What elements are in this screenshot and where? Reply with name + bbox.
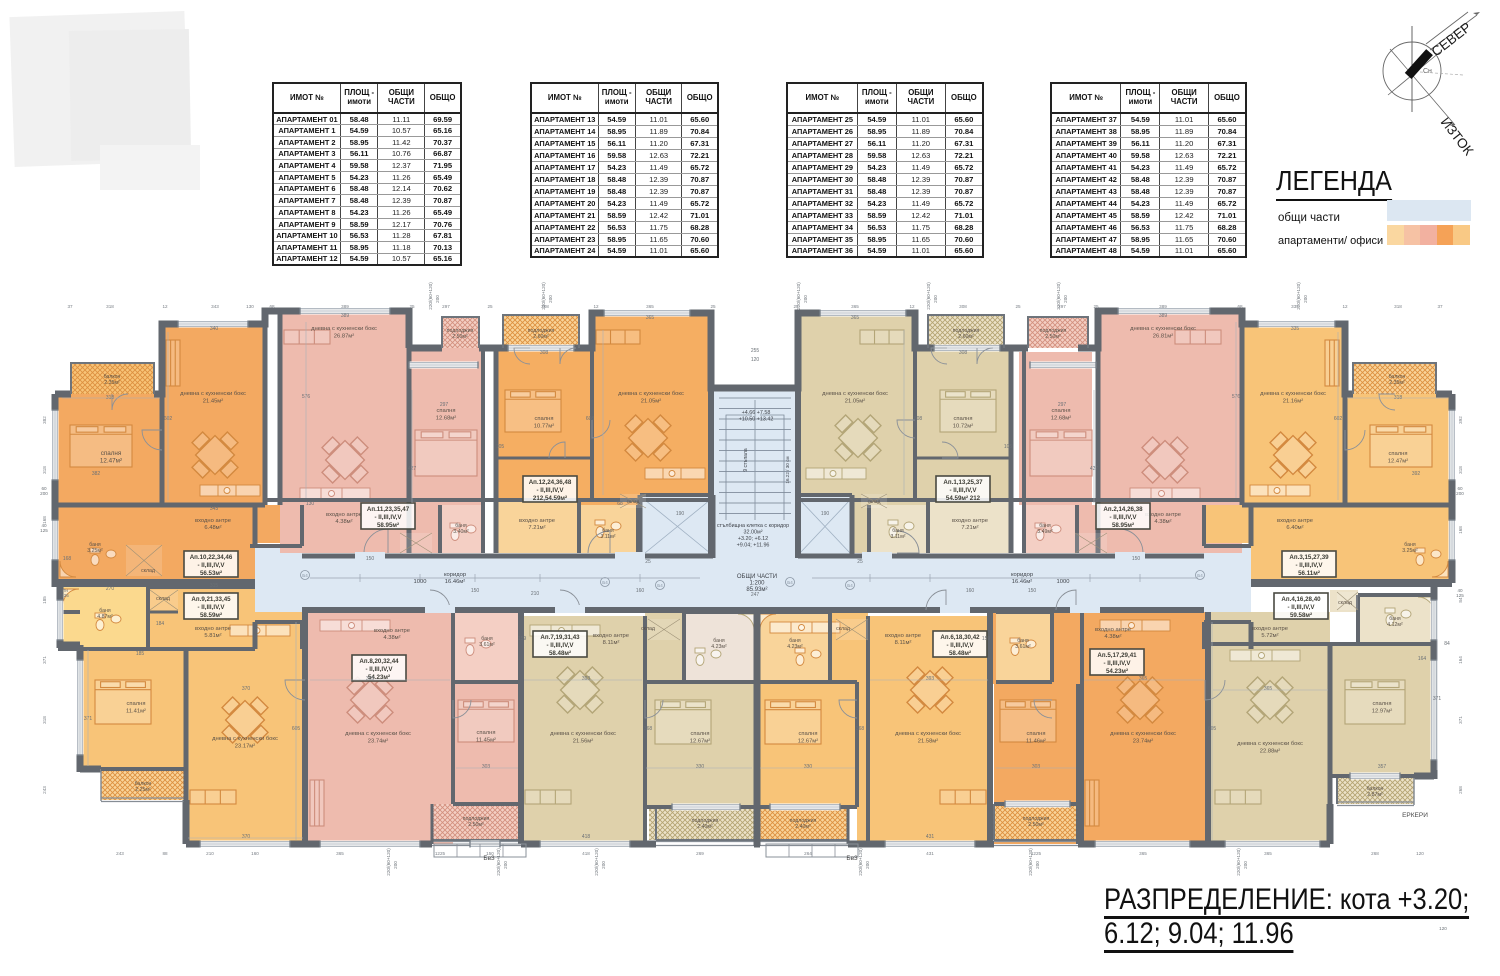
svg-text:365: 365 bbox=[1264, 686, 1273, 692]
svg-text:382: 382 bbox=[92, 471, 101, 477]
svg-text:68: 68 bbox=[269, 304, 275, 309]
svg-text:Ап.7,19,31,43: Ап.7,19,31,43 bbox=[540, 634, 580, 641]
svg-text:2.40м²: 2.40м² bbox=[697, 824, 713, 830]
svg-text:303: 303 bbox=[482, 764, 491, 770]
svg-text:26.87м²: 26.87м² bbox=[334, 334, 354, 340]
svg-text:входно антре: входно антре bbox=[195, 518, 231, 524]
svg-text:12: 12 bbox=[909, 304, 915, 309]
svg-text:418: 418 bbox=[582, 851, 590, 856]
svg-text:335: 335 bbox=[1291, 326, 1300, 332]
svg-text:56.11м²: 56.11м² bbox=[1298, 570, 1320, 577]
svg-text:297: 297 bbox=[440, 402, 449, 408]
svg-text:9 стъпала: 9 стъпала bbox=[743, 448, 749, 471]
svg-text:дневна с кухненски бокс: дневна с кухненски бокс bbox=[550, 731, 616, 737]
svg-text:2.40м²: 2.40м² bbox=[795, 824, 811, 830]
svg-text:3.61м²: 3.61м² bbox=[1015, 644, 1031, 650]
svg-text:54.59м² 212: 54.59м² 212 bbox=[946, 495, 981, 502]
svg-text:160: 160 bbox=[966, 588, 975, 594]
svg-text:220/(60+120): 220/(60+120) bbox=[858, 848, 863, 876]
svg-text:120: 120 bbox=[751, 357, 760, 363]
svg-text:370: 370 bbox=[242, 834, 251, 840]
svg-text:21.58м²: 21.58м² bbox=[918, 739, 938, 745]
svg-text:371: 371 bbox=[1458, 716, 1463, 724]
svg-text:220/(60+120): 220/(60+120) bbox=[428, 282, 433, 310]
svg-text:68: 68 bbox=[1237, 304, 1243, 309]
svg-text:368: 368 bbox=[644, 726, 653, 732]
svg-text:268: 268 bbox=[1458, 786, 1463, 794]
svg-text:365: 365 bbox=[336, 851, 344, 856]
svg-text:200: 200 bbox=[393, 861, 398, 869]
svg-text:Бв3: Бв3 bbox=[483, 855, 495, 862]
svg-text:389: 389 bbox=[1159, 304, 1167, 309]
svg-text:22.88м²: 22.88м² bbox=[1260, 749, 1280, 755]
svg-text:Б4: Б4 bbox=[847, 583, 853, 588]
svg-text:164: 164 bbox=[1418, 656, 1427, 662]
svg-text:стълбищна клетка с коридор: стълбищна клетка с коридор bbox=[717, 523, 789, 529]
svg-text:25: 25 bbox=[645, 559, 651, 565]
svg-text:184: 184 bbox=[156, 621, 165, 627]
svg-text:125: 125 bbox=[61, 593, 69, 598]
svg-text:330: 330 bbox=[696, 764, 705, 770]
svg-text:- II,III,IV,V: - II,III,IV,V bbox=[198, 562, 226, 569]
svg-text:12.68м²: 12.68м² bbox=[436, 416, 456, 422]
svg-text:12.47м²: 12.47м² bbox=[1388, 459, 1408, 465]
svg-text:343: 343 bbox=[211, 304, 219, 309]
svg-text:365: 365 bbox=[851, 304, 859, 309]
svg-text:200: 200 bbox=[1063, 295, 1068, 303]
svg-text:200: 200 bbox=[933, 295, 938, 303]
svg-text:220/(60+120): 220/(60+120) bbox=[594, 848, 599, 876]
svg-text:спалня: спалня bbox=[101, 450, 122, 457]
svg-text:5.81м²: 5.81м² bbox=[204, 633, 221, 639]
svg-text:Ап.12,24,36,48: Ап.12,24,36,48 bbox=[529, 479, 572, 486]
svg-text:150: 150 bbox=[1132, 556, 1141, 562]
svg-text:7.21м²: 7.21м² bbox=[528, 525, 545, 531]
svg-text:168: 168 bbox=[1458, 526, 1463, 534]
svg-text:21.56м²: 21.56м² bbox=[573, 739, 593, 745]
svg-text:608: 608 bbox=[914, 416, 923, 422]
svg-text:+3.20; +6.12: +3.20; +6.12 bbox=[738, 536, 768, 542]
svg-text:23.74м²: 23.74м² bbox=[368, 739, 388, 745]
svg-text:12: 12 bbox=[593, 304, 599, 309]
svg-text:2.60м²: 2.60м² bbox=[958, 334, 974, 340]
svg-text:7.21м²: 7.21м² bbox=[961, 525, 978, 531]
svg-text:11.46м²: 11.46м² bbox=[1026, 739, 1046, 745]
svg-text:389: 389 bbox=[341, 304, 349, 309]
svg-text:220/(60+120): 220/(60+120) bbox=[1296, 282, 1301, 310]
svg-text:365: 365 bbox=[1264, 851, 1272, 856]
svg-text:59.58м²: 59.58м² bbox=[1290, 612, 1312, 619]
svg-text:2.25м²: 2.25м² bbox=[135, 787, 151, 793]
svg-text:200: 200 bbox=[601, 861, 606, 869]
svg-text:389: 389 bbox=[1159, 313, 1168, 319]
svg-text:входно антре: входно антре bbox=[374, 628, 410, 634]
svg-text:357: 357 bbox=[1378, 764, 1387, 770]
svg-text:4.23м²: 4.23м² bbox=[787, 644, 803, 650]
svg-text:спалня: спалня bbox=[127, 701, 146, 707]
svg-text:- II,III,IV,V: - II,III,IV,V bbox=[947, 642, 975, 649]
svg-text:200: 200 bbox=[40, 491, 48, 496]
svg-text:200: 200 bbox=[1456, 491, 1464, 496]
svg-text:входно антре: входно антре bbox=[195, 626, 231, 632]
svg-text:- II,III,IV,V: - II,III,IV,V bbox=[1296, 562, 1324, 569]
svg-text:220/(60+120): 220/(60+120) bbox=[926, 282, 931, 310]
svg-text:25: 25 bbox=[1015, 304, 1021, 309]
svg-text:58.48м²: 58.48м² bbox=[549, 650, 571, 657]
svg-text:12.97м²: 12.97м² bbox=[1372, 709, 1392, 715]
svg-text:382: 382 bbox=[42, 416, 47, 424]
svg-text:308: 308 bbox=[540, 350, 549, 356]
svg-text:- II,III,IV,V: - II,III,IV,V bbox=[537, 487, 565, 494]
svg-text:220/(60+120): 220/(60+120) bbox=[1028, 848, 1033, 876]
svg-text:84: 84 bbox=[1444, 641, 1450, 647]
svg-text:297: 297 bbox=[442, 304, 450, 309]
svg-text:340: 340 bbox=[210, 326, 219, 332]
svg-text:входно антре: входно антре bbox=[1277, 518, 1313, 524]
svg-text:спалня: спалня bbox=[954, 416, 973, 422]
svg-text:спалня: спалня bbox=[691, 731, 710, 737]
svg-text:дневна с кухненски бокс: дневна с кухненски бокс bbox=[895, 731, 961, 737]
svg-text:220/(60+120): 220/(60+120) bbox=[386, 848, 391, 876]
svg-text:220/(60+120): 220/(60+120) bbox=[1056, 282, 1061, 310]
svg-text:308: 308 bbox=[959, 304, 967, 309]
svg-text:спалня: спалня bbox=[1027, 731, 1046, 737]
svg-text:190: 190 bbox=[676, 511, 685, 517]
svg-text:2.50м²: 2.50м² bbox=[468, 822, 484, 828]
svg-text:269: 269 bbox=[696, 851, 704, 856]
svg-text:243: 243 bbox=[116, 851, 124, 856]
svg-text:11.45м²: 11.45м² bbox=[476, 738, 496, 744]
svg-text:58.48м²: 58.48м² bbox=[949, 650, 971, 657]
svg-text:200: 200 bbox=[1243, 861, 1248, 869]
svg-text:392: 392 bbox=[1412, 471, 1421, 477]
svg-text:159: 159 bbox=[518, 636, 527, 642]
svg-text:+10.50 +13.42: +10.50 +13.42 bbox=[739, 417, 774, 423]
svg-text:4.38м²: 4.38м² bbox=[335, 519, 352, 525]
svg-text:365: 365 bbox=[1139, 851, 1147, 856]
svg-text:4.38м²: 4.38м² bbox=[383, 635, 400, 641]
svg-text:303: 303 bbox=[1032, 764, 1041, 770]
svg-text:25: 25 bbox=[487, 304, 493, 309]
svg-text:200: 200 bbox=[803, 295, 808, 303]
svg-text:ЕРКЕРИ: ЕРКЕРИ bbox=[1402, 812, 1428, 819]
svg-text:190: 190 bbox=[821, 511, 830, 517]
svg-text:220/(60+120): 220/(60+120) bbox=[796, 282, 801, 310]
svg-text:Ап.2,14,26,38: Ап.2,14,26,38 bbox=[1103, 506, 1143, 513]
svg-text:243: 243 bbox=[42, 786, 47, 794]
svg-text:343: 343 bbox=[210, 506, 219, 512]
svg-text:150: 150 bbox=[366, 556, 375, 562]
svg-text:2.50м²: 2.50м² bbox=[1028, 822, 1044, 828]
svg-text:270: 270 bbox=[106, 586, 115, 592]
svg-text:2.35м²: 2.35м² bbox=[104, 380, 120, 386]
svg-text:8.11м²: 8.11м² bbox=[895, 640, 912, 646]
svg-text:212,54.59м²: 212,54.59м² bbox=[533, 495, 567, 502]
svg-text:- II,III,IV,V: - II,III,IV,V bbox=[1110, 514, 1138, 521]
svg-text:200: 200 bbox=[548, 295, 553, 303]
svg-text:130: 130 bbox=[246, 304, 254, 309]
svg-text:коридор: коридор bbox=[444, 572, 466, 578]
svg-text:431: 431 bbox=[926, 834, 935, 840]
svg-text:365: 365 bbox=[646, 304, 654, 309]
svg-text:4.38м²: 4.38м² bbox=[1154, 519, 1171, 525]
svg-text:32.00м²: 32.00м² bbox=[744, 530, 763, 536]
svg-text:входно антре: входно антре bbox=[885, 633, 921, 639]
svg-text:спалня: спалня bbox=[535, 416, 554, 422]
svg-text:5.72м²: 5.72м² bbox=[1261, 633, 1278, 639]
svg-text:Б4: Б4 bbox=[657, 583, 663, 588]
svg-text:150: 150 bbox=[471, 588, 480, 594]
svg-text:склад: склад bbox=[627, 500, 640, 505]
svg-text:88: 88 bbox=[162, 851, 168, 856]
svg-text:2.35м²: 2.35м² bbox=[1389, 380, 1405, 386]
svg-text:дневна с кухненски бокс: дневна с кухненски бокс bbox=[1130, 326, 1196, 332]
svg-text:25: 25 bbox=[1093, 304, 1099, 309]
svg-text:268: 268 bbox=[1371, 851, 1379, 856]
svg-text:365: 365 bbox=[851, 315, 860, 321]
svg-text:спалня: спалня bbox=[1373, 701, 1392, 707]
svg-text:1225: 1225 bbox=[435, 851, 446, 856]
svg-text:2.50м²: 2.50м² bbox=[1045, 334, 1061, 340]
svg-text:дневна с кухненски бокс: дневна с кухненски бокс bbox=[1237, 741, 1303, 747]
svg-text:431: 431 bbox=[926, 851, 934, 856]
svg-text:дневна с кухненски бокс: дневна с кухненски бокс bbox=[822, 391, 888, 397]
svg-text:308: 308 bbox=[959, 350, 968, 356]
svg-text:150: 150 bbox=[1028, 588, 1037, 594]
svg-text:3.11м²: 3.11м² bbox=[600, 534, 615, 540]
svg-text:дневна с кухненски бокс: дневна с кухненски бокс bbox=[1260, 391, 1326, 397]
svg-text:185: 185 bbox=[42, 596, 47, 604]
svg-text:склад: склад bbox=[1338, 600, 1352, 606]
svg-text:10.72м²: 10.72м² bbox=[953, 424, 973, 430]
svg-text:Б4: Б4 bbox=[787, 580, 793, 585]
svg-text:Ап.9,21,33,45: Ап.9,21,33,45 bbox=[191, 596, 231, 603]
svg-text:25: 25 bbox=[409, 304, 415, 309]
svg-text:3.40м²: 3.40м² bbox=[453, 529, 469, 535]
svg-text:входно антре: входно антре bbox=[1252, 626, 1288, 632]
svg-text:2.87м²: 2.87м² bbox=[1367, 792, 1383, 798]
svg-text:склад: склад bbox=[868, 500, 881, 505]
svg-text:4.87м²: 4.87м² bbox=[97, 614, 113, 620]
svg-text:393: 393 bbox=[926, 676, 935, 682]
svg-text:Ап.1,13,25,37: Ап.1,13,25,37 bbox=[943, 479, 983, 486]
svg-text:200: 200 bbox=[435, 295, 440, 303]
svg-text:365: 365 bbox=[646, 315, 655, 321]
svg-text:- II,III,IV,V: - II,III,IV,V bbox=[547, 642, 575, 649]
svg-text:185: 185 bbox=[136, 651, 145, 657]
svg-text:входно антре: входно антре bbox=[952, 518, 988, 524]
svg-text:12.67м²: 12.67м² bbox=[690, 739, 710, 745]
svg-text:160: 160 bbox=[636, 588, 645, 594]
svg-text:входно антре: входно антре bbox=[1095, 627, 1131, 633]
svg-text:200: 200 bbox=[1303, 295, 1308, 303]
svg-text:264: 264 bbox=[804, 851, 812, 856]
svg-text:Ап.3,15,27,39: Ап.3,15,27,39 bbox=[1289, 554, 1329, 561]
svg-text:389: 389 bbox=[341, 313, 350, 319]
svg-text:21.05м²: 21.05м² bbox=[845, 399, 865, 405]
svg-text:330: 330 bbox=[804, 764, 813, 770]
svg-text:37: 37 bbox=[67, 304, 73, 309]
svg-text:спалня: спалня bbox=[1052, 408, 1071, 414]
svg-text:+4.66 +7.58: +4.66 +7.58 bbox=[742, 410, 771, 416]
svg-text:318: 318 bbox=[1458, 466, 1463, 474]
svg-text:160: 160 bbox=[251, 851, 259, 856]
svg-text:дневна с кухненски бокс: дневна с кухненски бокс bbox=[345, 731, 411, 737]
svg-text:3.25м²: 3.25м² bbox=[87, 548, 103, 554]
svg-text:- II,III,IV,V: - II,III,IV,V bbox=[375, 514, 403, 521]
svg-text:дневна с кухненски бокс: дневна с кухненски бокс bbox=[311, 326, 377, 332]
svg-text:склад: склад bbox=[641, 626, 655, 632]
svg-text:+9.04; +11.96: +9.04; +11.96 bbox=[737, 543, 770, 549]
svg-text:- II,III,IV,V: - II,III,IV,V bbox=[366, 666, 394, 673]
svg-text:Ап.5,17,29,41: Ап.5,17,29,41 bbox=[1097, 652, 1137, 659]
svg-text:3.61м²: 3.61м² bbox=[479, 642, 495, 648]
svg-text:68: 68 bbox=[617, 501, 623, 507]
svg-text:200: 200 bbox=[503, 861, 508, 869]
svg-text:12: 12 bbox=[162, 304, 168, 309]
svg-text:255: 255 bbox=[751, 348, 760, 354]
svg-text:58.59м²: 58.59м² bbox=[200, 612, 222, 619]
svg-text:Б4: Б4 bbox=[1197, 573, 1203, 578]
svg-text:4.12м²: 4.12м² bbox=[1387, 622, 1403, 628]
svg-text:21.45м²: 21.45м² bbox=[203, 399, 223, 405]
svg-text:1:200: 1:200 bbox=[749, 581, 765, 587]
svg-text:16.22 / 30 см: 16.22 / 30 см bbox=[785, 456, 790, 483]
svg-text:дневна с кухненски бокс: дневна с кухненски бокс bbox=[212, 736, 278, 742]
svg-text:105: 105 bbox=[496, 444, 505, 450]
svg-text:1000: 1000 bbox=[1057, 579, 1070, 585]
svg-text:318: 318 bbox=[1394, 304, 1402, 309]
svg-text:365: 365 bbox=[1139, 676, 1148, 682]
svg-text:дневна с кухненски бокс: дневна с кухненски бокс bbox=[180, 391, 246, 397]
svg-text:318: 318 bbox=[42, 466, 47, 474]
svg-text:склад: склад bbox=[836, 626, 850, 632]
svg-text:247: 247 bbox=[751, 592, 760, 598]
svg-text:159: 159 bbox=[982, 636, 991, 642]
svg-text:2.60м²: 2.60м² bbox=[533, 334, 549, 340]
svg-text:25: 25 bbox=[857, 559, 863, 565]
svg-text:220/(60+120): 220/(60+120) bbox=[496, 848, 501, 876]
svg-text:Ап.4,16,28,40: Ап.4,16,28,40 bbox=[1281, 596, 1321, 603]
svg-text:11.41м²: 11.41м² bbox=[126, 709, 146, 715]
svg-text:56.53м²: 56.53м² bbox=[200, 570, 222, 577]
svg-text:125: 125 bbox=[40, 528, 48, 533]
svg-text:6.40м²: 6.40м² bbox=[1286, 525, 1303, 531]
svg-text:дневна с кухненски бокс: дневна с кухненски бокс bbox=[618, 391, 684, 397]
svg-text:16.46м²: 16.46м² bbox=[445, 579, 465, 585]
svg-text:392: 392 bbox=[1458, 416, 1463, 424]
svg-text:318: 318 bbox=[42, 716, 47, 724]
svg-text:входно антре: входно антре bbox=[326, 512, 362, 518]
svg-text:Б4: Б4 bbox=[302, 573, 308, 578]
svg-text:120: 120 bbox=[1416, 851, 1424, 856]
svg-text:входно антре: входно антре bbox=[519, 518, 555, 524]
svg-text:318: 318 bbox=[106, 304, 114, 309]
svg-text:склад: склад bbox=[156, 596, 170, 602]
svg-text:21.16м²: 21.16м² bbox=[1283, 399, 1303, 405]
svg-text:58.95м²: 58.95м² bbox=[377, 522, 399, 529]
svg-text:125: 125 bbox=[1456, 593, 1464, 598]
svg-text:54.23м²: 54.23м² bbox=[1106, 668, 1128, 675]
svg-text:297: 297 bbox=[1058, 402, 1067, 408]
svg-text:3.49м²: 3.49м² bbox=[1037, 529, 1053, 535]
svg-text:210: 210 bbox=[206, 851, 214, 856]
svg-text:150: 150 bbox=[486, 851, 494, 856]
svg-text:спалня: спалня bbox=[477, 730, 496, 736]
svg-text:21.05м²: 21.05м² bbox=[641, 399, 661, 405]
svg-text:37: 37 bbox=[1437, 304, 1443, 309]
svg-text:6.48м²: 6.48м² bbox=[204, 525, 221, 531]
svg-text:Ап.6,18,30,42: Ап.6,18,30,42 bbox=[940, 634, 980, 641]
svg-text:371: 371 bbox=[42, 656, 47, 664]
svg-text:- II,III,IV,V: - II,III,IV,V bbox=[198, 604, 226, 611]
svg-text:23.17м²: 23.17м² bbox=[235, 744, 255, 750]
svg-text:105: 105 bbox=[1004, 444, 1013, 450]
svg-text:393: 393 bbox=[582, 676, 591, 682]
svg-text:200: 200 bbox=[1035, 861, 1040, 869]
svg-text:Ап.10,22,34,46: Ап.10,22,34,46 bbox=[190, 554, 233, 561]
svg-text:4.23м²: 4.23м² bbox=[711, 644, 727, 650]
svg-text:12.67м²: 12.67м² bbox=[798, 739, 818, 745]
svg-text:спалня: спалня bbox=[1389, 451, 1408, 457]
svg-text:склад: склад bbox=[141, 568, 155, 574]
svg-text:210: 210 bbox=[531, 591, 540, 597]
svg-text:Ап.11,23,35,47: Ап.11,23,35,47 bbox=[367, 506, 410, 513]
svg-text:ОБЩИ ЧАСТИ: ОБЩИ ЧАСТИ bbox=[737, 574, 777, 580]
svg-text:12: 12 bbox=[1342, 304, 1348, 309]
svg-text:10.77м²: 10.77м² bbox=[534, 424, 554, 430]
svg-text:168: 168 bbox=[63, 556, 72, 562]
svg-text:12.47м²: 12.47м² bbox=[100, 458, 122, 465]
svg-text:130: 130 bbox=[306, 501, 315, 507]
svg-text:входно антре: входно антре bbox=[593, 633, 629, 639]
svg-text:2.50м²: 2.50м² bbox=[452, 334, 468, 340]
svg-text:26.81м²: 26.81м² bbox=[1153, 334, 1173, 340]
svg-text:Б4: Б4 bbox=[602, 580, 608, 585]
svg-text:368: 368 bbox=[856, 726, 865, 732]
svg-text:220/(60+120): 220/(60+120) bbox=[541, 282, 546, 310]
svg-text:25: 25 bbox=[710, 304, 716, 309]
svg-text:12.68м²: 12.68м² bbox=[1051, 416, 1071, 422]
svg-text:8.11м²: 8.11м² bbox=[603, 640, 620, 646]
svg-text:365: 365 bbox=[366, 676, 375, 682]
svg-text:спалня: спалня bbox=[437, 408, 456, 414]
svg-text:- II,III,IV,V: - II,III,IV,V bbox=[1104, 660, 1132, 667]
svg-text:3.11м²: 3.11м² bbox=[890, 534, 905, 540]
svg-text:220/(60+120): 220/(60+120) bbox=[1236, 848, 1241, 876]
svg-text:Ап.8,20,32,44: Ап.8,20,32,44 bbox=[359, 658, 399, 665]
svg-text:Бв3: Бв3 bbox=[846, 855, 858, 862]
svg-text:- II,III,IV,V: - II,III,IV,V bbox=[950, 487, 978, 494]
svg-text:3.25м²: 3.25м² bbox=[1402, 548, 1418, 554]
svg-text:370: 370 bbox=[242, 686, 251, 692]
svg-text:164: 164 bbox=[1458, 656, 1463, 664]
svg-text:23.74м²: 23.74м² bbox=[1133, 739, 1153, 745]
svg-text:спалня: спалня bbox=[799, 731, 818, 737]
svg-text:дневна с кухненски бокс: дневна с кухненски бокс bbox=[1110, 731, 1176, 737]
svg-text:608: 608 bbox=[586, 416, 595, 422]
svg-text:200: 200 bbox=[865, 861, 870, 869]
svg-text:4.38м²: 4.38м² bbox=[1104, 634, 1121, 640]
svg-text:315: 315 bbox=[210, 583, 219, 589]
svg-text:418: 418 bbox=[582, 834, 591, 840]
svg-text:58.95м²: 58.95м² bbox=[1112, 522, 1134, 529]
svg-text:- II,III,IV,V: - II,III,IV,V bbox=[1288, 604, 1316, 611]
